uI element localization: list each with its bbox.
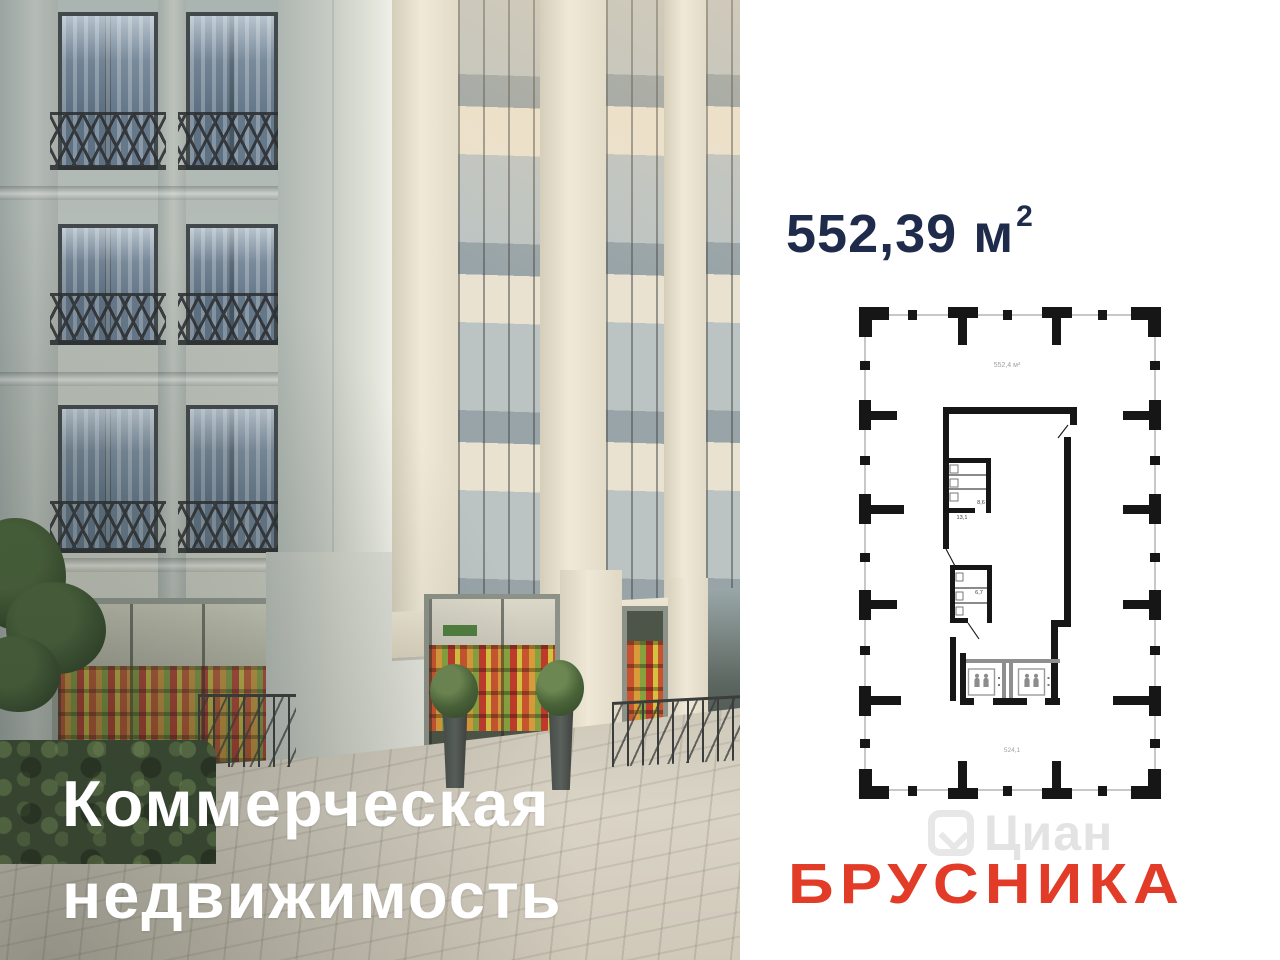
cornice-line xyxy=(0,372,278,386)
balcony-railing xyxy=(50,293,166,345)
area-unit: м xyxy=(973,204,1014,264)
area-value: 552,39 xyxy=(786,204,957,264)
balcony-railing xyxy=(178,112,286,170)
elevator-icon xyxy=(1019,669,1050,695)
plan-area-bottom-label: 524,1 xyxy=(1004,747,1021,754)
plan-room-label: 13,1 xyxy=(957,515,968,521)
facade-sun-side xyxy=(392,0,740,648)
balcony-railing xyxy=(178,293,286,345)
window-strip xyxy=(606,0,664,650)
balcony-railing xyxy=(178,501,286,553)
building-photo: Коммерческая недвижимость xyxy=(0,0,740,960)
area-sup: 2 xyxy=(1016,200,1034,233)
pilaster xyxy=(540,0,606,648)
headline-line1: Коммерческая xyxy=(62,758,563,850)
balcony-railing xyxy=(50,112,166,170)
brand-logo: БРУСНИКА xyxy=(788,852,1185,917)
area-title: 552,39 м2 xyxy=(786,200,1034,265)
listing-image: Коммерческая недвижимость 552,39 м2 xyxy=(0,0,1280,960)
floor-plan: 552,4 м² 8,6 13,1 6,7 524,1 xyxy=(855,303,1165,803)
plan-room-label: 6,7 xyxy=(975,590,983,596)
cian-logo-icon xyxy=(928,810,974,856)
doors-and-partitions xyxy=(946,425,1068,639)
elevator-icon xyxy=(969,669,1001,695)
headline-line2: недвижимость xyxy=(62,850,563,942)
window-strip xyxy=(458,0,540,651)
metal-fence xyxy=(612,695,740,767)
balcony-railing xyxy=(50,501,166,553)
plan-area-top-label: 552,4 м² xyxy=(994,362,1021,369)
headline: Коммерческая недвижимость xyxy=(62,758,563,942)
facade-glazing-line xyxy=(865,315,1155,790)
planter-bush xyxy=(536,660,584,716)
pilaster xyxy=(664,0,706,648)
window-strip xyxy=(706,0,740,649)
planter-bush xyxy=(430,664,478,718)
plan-room-label: 8,6 xyxy=(977,500,985,506)
structural-columns xyxy=(859,307,1161,799)
cornice-line xyxy=(0,186,278,200)
elevator-block xyxy=(960,653,1060,705)
pilaster xyxy=(392,0,458,648)
